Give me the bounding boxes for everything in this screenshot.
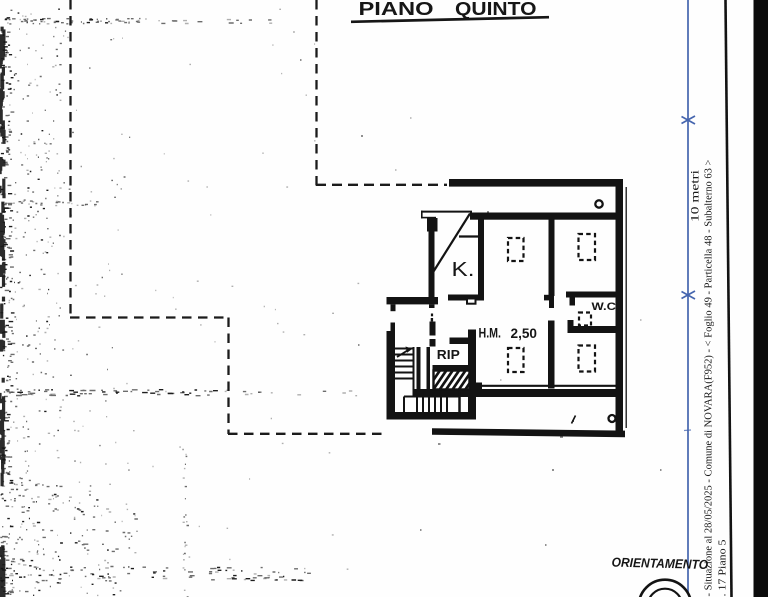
svg-text:H.M.: H.M. <box>479 326 502 341</box>
svg-text:QUINTO: QUINTO <box>455 0 537 19</box>
svg-text:10 metri: 10 metri <box>690 170 702 222</box>
svg-text:. 17 Piano 5: . 17 Piano 5 <box>717 540 729 597</box>
svg-text:RIP: RIP <box>437 348 460 362</box>
svg-text:2,50: 2,50 <box>511 326 538 341</box>
svg-text:K.: K. <box>452 259 475 281</box>
svg-text:- Situazione al 28/05/2025 - C: - Situazione al 28/05/2025 - Comune di N… <box>703 160 715 597</box>
svg-text:PIANO: PIANO <box>359 0 434 19</box>
svg-text:ORIENTAMENTO: ORIENTAMENTO <box>611 555 708 573</box>
svg-text:W.C: W.C <box>592 301 617 313</box>
